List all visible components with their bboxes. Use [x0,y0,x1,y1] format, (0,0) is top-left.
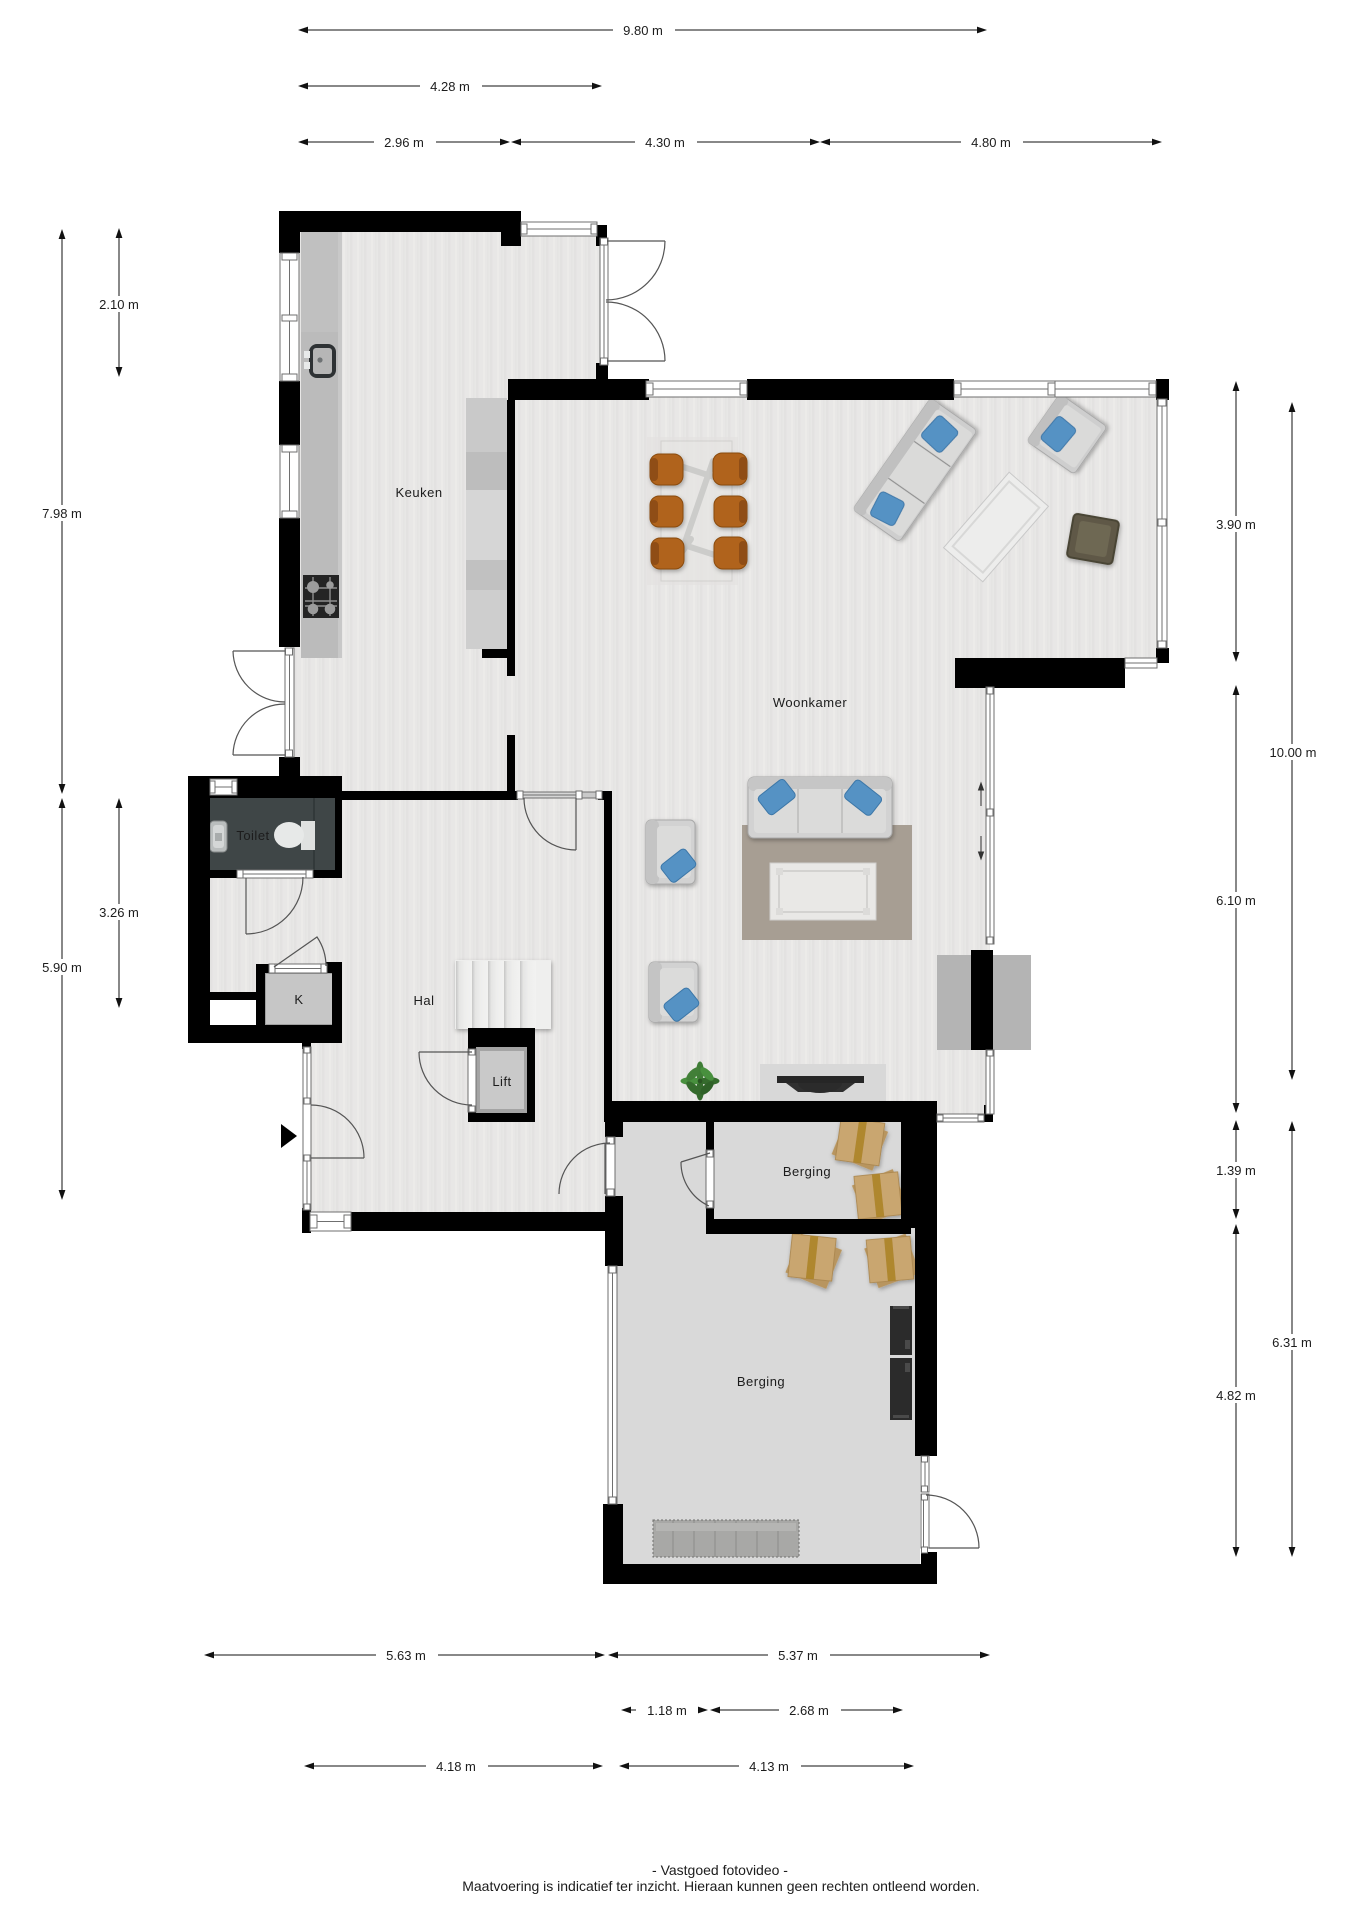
svg-text:Maatvoering is indicatief ter: Maatvoering is indicatief ter inzicht. H… [462,1878,980,1894]
svg-text:Toilet: Toilet [236,828,269,843]
svg-text:6.10 m: 6.10 m [1216,893,1256,908]
svg-text:- Vastgoed fotovideo -: - Vastgoed fotovideo - [652,1862,788,1878]
svg-text:4.82 m: 4.82 m [1216,1388,1256,1403]
svg-text:5.63 m: 5.63 m [386,1648,426,1663]
svg-text:4.13 m: 4.13 m [749,1759,789,1774]
svg-text:3.26 m: 3.26 m [99,905,139,920]
svg-text:Berging: Berging [783,1164,831,1179]
svg-text:1.18 m: 1.18 m [647,1703,687,1718]
svg-text:1.39 m: 1.39 m [1216,1163,1256,1178]
svg-text:5.37 m: 5.37 m [778,1648,818,1663]
svg-text:4.18 m: 4.18 m [436,1759,476,1774]
svg-text:2.96 m: 2.96 m [384,135,424,150]
svg-text:10.00 m: 10.00 m [1270,745,1317,760]
svg-text:3.90 m: 3.90 m [1216,517,1256,532]
svg-text:Hal: Hal [413,993,434,1008]
svg-text:4.80 m: 4.80 m [971,135,1011,150]
svg-text:Berging: Berging [737,1374,785,1389]
svg-text:Keuken: Keuken [395,485,442,500]
svg-text:7.98 m: 7.98 m [42,506,82,521]
svg-text:Lift: Lift [492,1074,511,1089]
svg-text:4.30 m: 4.30 m [645,135,685,150]
svg-text:6.31 m: 6.31 m [1272,1335,1312,1350]
svg-text:2.10 m: 2.10 m [99,297,139,312]
svg-text:4.28 m: 4.28 m [430,79,470,94]
svg-text:K: K [294,992,303,1007]
svg-text:9.80 m: 9.80 m [623,23,663,38]
svg-text:2.68 m: 2.68 m [789,1703,829,1718]
svg-text:5.90 m: 5.90 m [42,960,82,975]
svg-text:Woonkamer: Woonkamer [773,695,848,710]
